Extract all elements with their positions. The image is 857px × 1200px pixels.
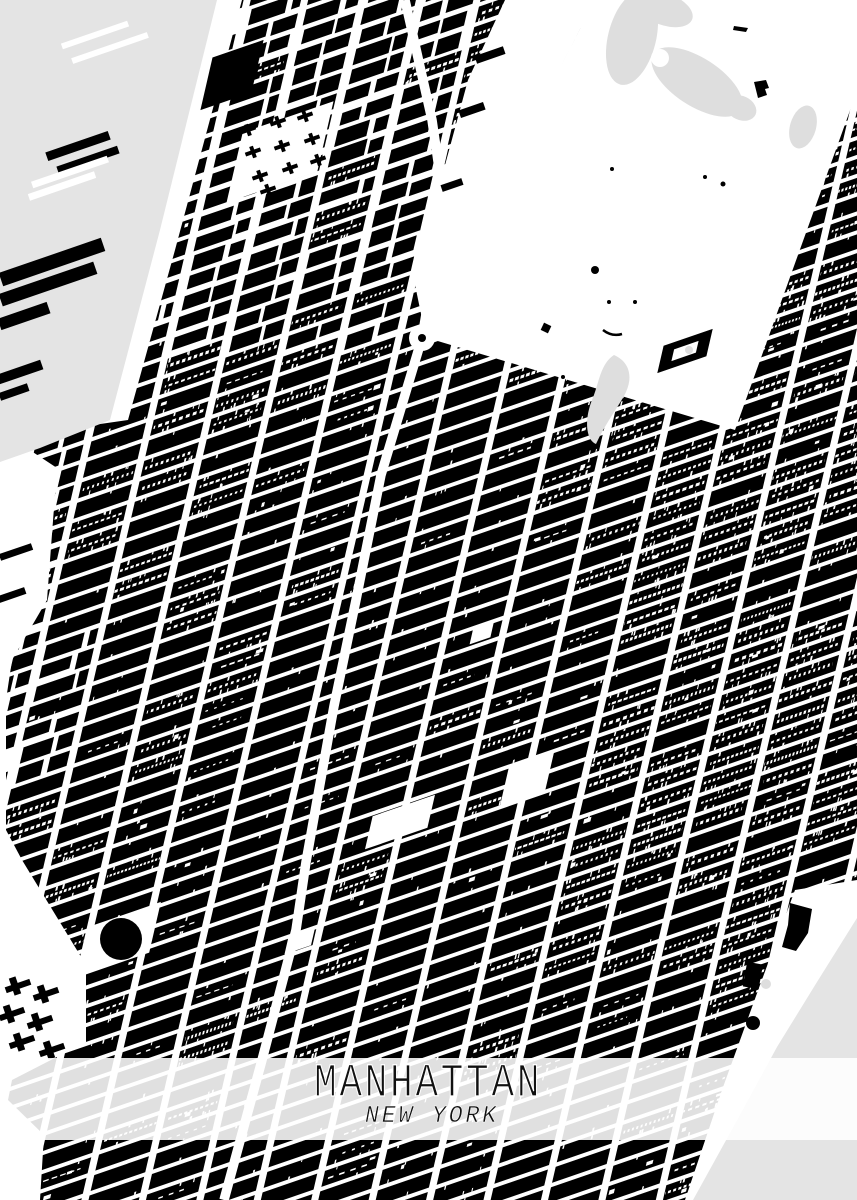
- svg-text:NEW YORK: NEW YORK: [365, 1103, 499, 1130]
